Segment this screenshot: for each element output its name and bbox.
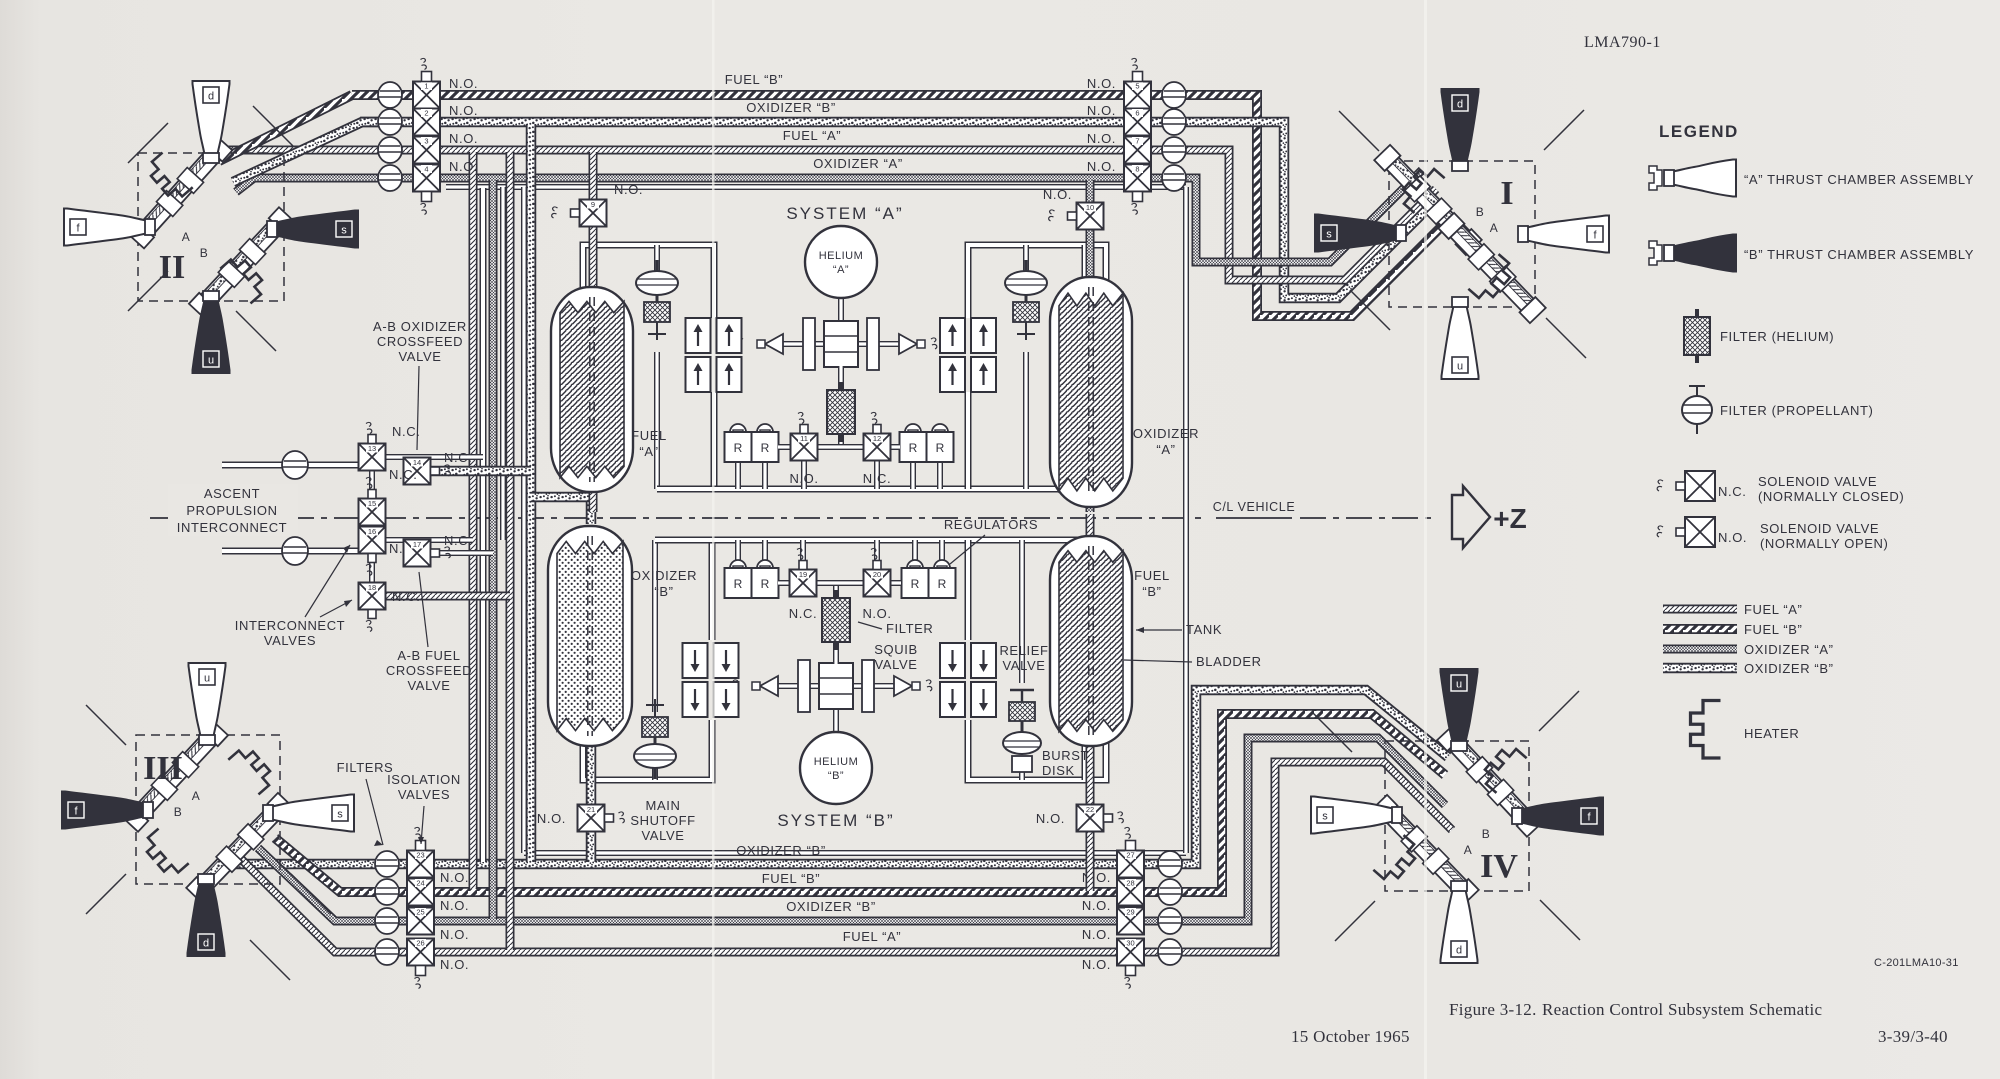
svg-text:N.O.: N.O. [1043, 187, 1072, 202]
svg-text:C-201LMA10-31: C-201LMA10-31 [1874, 957, 1959, 969]
svg-text:N.C.: N.C. [392, 589, 420, 604]
svg-text:N.C.: N.C. [1718, 484, 1746, 499]
svg-text:3: 3 [424, 137, 428, 146]
svg-text:N.O.: N.O. [449, 103, 478, 118]
svg-text:N.O.: N.O. [862, 606, 891, 621]
svg-text:s: s [341, 225, 347, 237]
svg-text:N.C.: N.C. [444, 450, 472, 465]
svg-text:d: d [203, 938, 209, 950]
svg-text:R: R [734, 577, 743, 591]
svg-text:IV: IV [1480, 848, 1518, 885]
svg-text:29: 29 [1126, 908, 1134, 917]
svg-text:VALVE: VALVE [642, 828, 685, 843]
svg-text:N.O.: N.O. [1036, 811, 1065, 826]
svg-text:“A”: “A” [639, 444, 658, 459]
svg-text:27: 27 [1126, 851, 1134, 860]
svg-text:FUEL: FUEL [1134, 568, 1170, 583]
svg-text:B: B [1482, 827, 1491, 841]
svg-text:A: A [182, 230, 191, 244]
svg-text:13: 13 [368, 444, 376, 453]
svg-text:LMA790-1: LMA790-1 [1584, 34, 1661, 51]
svg-text:OXIDIZER “A”: OXIDIZER “A” [1744, 642, 1834, 657]
svg-text:s: s [1326, 229, 1332, 241]
svg-text:VALVES: VALVES [398, 787, 450, 802]
svg-text:I: I [1500, 175, 1513, 212]
svg-text:II: II [159, 249, 185, 286]
svg-text:BLADDER: BLADDER [1196, 654, 1262, 669]
svg-text:28: 28 [1126, 879, 1134, 888]
svg-text:N.O.: N.O. [449, 131, 478, 146]
svg-text:1: 1 [424, 82, 428, 91]
svg-text:VALVES: VALVES [264, 633, 316, 648]
svg-text:20: 20 [873, 570, 881, 579]
svg-text:18: 18 [368, 583, 376, 592]
svg-text:SHUTOFF: SHUTOFF [630, 813, 695, 828]
svg-text:N.O.: N.O. [789, 471, 818, 486]
svg-text:B: B [200, 246, 209, 260]
svg-text:OXIDIZER “B”: OXIDIZER “B” [746, 100, 836, 115]
svg-text:“B”: “B” [828, 770, 844, 782]
svg-text:DISK: DISK [1042, 763, 1075, 778]
svg-text:4: 4 [424, 165, 428, 174]
svg-text:N.O.: N.O. [1082, 927, 1111, 942]
svg-text:B: B [1476, 205, 1485, 219]
svg-text:FUEL “B”: FUEL “B” [1744, 622, 1803, 637]
svg-text:VALVE: VALVE [1003, 658, 1046, 673]
svg-text:HELIUM: HELIUM [819, 250, 864, 262]
svg-text:A: A [1464, 843, 1473, 857]
svg-text:15: 15 [368, 499, 376, 508]
svg-text:OXIDIZER “B”: OXIDIZER “B” [786, 899, 876, 914]
svg-text:R: R [909, 441, 918, 455]
svg-text:N.O.: N.O. [614, 182, 643, 197]
svg-text:10: 10 [1086, 203, 1094, 212]
svg-text:LEGEND: LEGEND [1659, 122, 1739, 141]
svg-text:+Z: +Z [1493, 503, 1526, 534]
svg-text:N.O.: N.O. [449, 159, 478, 174]
svg-text:d: d [1456, 945, 1462, 957]
svg-text:FILTER: FILTER [886, 621, 933, 636]
svg-text:17: 17 [413, 540, 421, 549]
svg-text:14: 14 [413, 458, 421, 467]
svg-text:N.C.: N.C. [444, 533, 472, 548]
svg-text:u: u [208, 355, 214, 367]
svg-text:HELIUM: HELIUM [814, 756, 859, 768]
svg-text:5: 5 [1135, 82, 1139, 91]
svg-text:u: u [204, 673, 210, 685]
svg-text:B: B [174, 805, 183, 819]
svg-text:u: u [1457, 361, 1463, 373]
svg-text:“B”: “B” [654, 584, 673, 599]
svg-text:FUEL “B”: FUEL “B” [762, 871, 821, 886]
svg-text:SQUIB: SQUIB [874, 642, 917, 657]
svg-text:Reaction Control Subsystem Sch: Reaction Control Subsystem Schematic [1542, 1000, 1823, 1019]
svg-text:FUEL: FUEL [631, 428, 667, 443]
svg-text:(NORMALLY CLOSED): (NORMALLY CLOSED) [1758, 489, 1904, 504]
svg-text:REGULATORS: REGULATORS [944, 517, 1038, 532]
svg-text:R: R [761, 441, 770, 455]
svg-text:CROSSFEED: CROSSFEED [386, 663, 472, 678]
svg-text:N.O.: N.O. [1087, 103, 1116, 118]
svg-text:16: 16 [368, 527, 376, 536]
svg-text:N.O.: N.O. [1082, 898, 1111, 913]
svg-text:19: 19 [799, 570, 807, 579]
svg-text:N.O.: N.O. [1718, 530, 1747, 545]
svg-text:“B”: “B” [1142, 584, 1161, 599]
svg-text:CROSSFEED: CROSSFEED [377, 334, 463, 349]
svg-text:“A”: “A” [1156, 442, 1175, 457]
svg-text:ASCENT: ASCENT [204, 486, 260, 501]
svg-text:25: 25 [416, 908, 424, 917]
svg-text:26: 26 [416, 939, 424, 948]
svg-text:A: A [1490, 221, 1499, 235]
svg-text:INTERCONNECT: INTERCONNECT [235, 618, 345, 633]
svg-text:8: 8 [1135, 165, 1139, 174]
svg-text:VALVE: VALVE [875, 657, 918, 672]
svg-text:24: 24 [416, 879, 424, 888]
svg-text:N.O.: N.O. [440, 870, 469, 885]
svg-text:RELIEF: RELIEF [999, 643, 1048, 658]
svg-text:7: 7 [1135, 137, 1139, 146]
svg-text:Figure 3-12.: Figure 3-12. [1449, 1000, 1537, 1019]
svg-text:12: 12 [873, 434, 881, 443]
svg-text:R: R [761, 577, 770, 591]
svg-text:VALVE: VALVE [399, 349, 442, 364]
svg-text:“A”: “A” [833, 264, 849, 276]
svg-text:15 October 1965: 15 October 1965 [1291, 1027, 1410, 1046]
svg-text:N.O.: N.O. [440, 957, 469, 972]
svg-text:N.O.: N.O. [1087, 159, 1116, 174]
svg-text:N.O.: N.O. [537, 811, 566, 826]
svg-text:FILTER (PROPELLANT): FILTER (PROPELLANT) [1720, 403, 1873, 418]
svg-text:VALVE: VALVE [408, 678, 451, 693]
svg-text:(NORMALLY OPEN): (NORMALLY OPEN) [1760, 536, 1888, 551]
svg-text:FILTER (HELIUM): FILTER (HELIUM) [1720, 329, 1834, 344]
svg-text:FILTERS: FILTERS [337, 760, 394, 775]
svg-text:6: 6 [1135, 109, 1139, 118]
svg-text:R: R [911, 577, 920, 591]
svg-text:A-B OXIDIZER: A-B OXIDIZER [373, 319, 467, 334]
svg-text:OXIDIZER: OXIDIZER [631, 568, 697, 583]
svg-text:A-B FUEL: A-B FUEL [397, 648, 460, 663]
svg-text:N.C.: N.C. [789, 606, 817, 621]
svg-text:u: u [1456, 679, 1462, 691]
svg-text:“B” THRUST CHAMBER ASSEMBLY: “B” THRUST CHAMBER ASSEMBLY [1744, 247, 1974, 262]
svg-text:30: 30 [1126, 939, 1134, 948]
svg-text:21: 21 [587, 805, 595, 814]
svg-text:N.O.: N.O. [440, 898, 469, 913]
svg-text:FUEL “A”: FUEL “A” [783, 128, 842, 143]
svg-text:ISOLATION: ISOLATION [387, 772, 461, 787]
svg-text:3-39/3-40: 3-39/3-40 [1878, 1027, 1948, 1046]
svg-text:22: 22 [1086, 805, 1094, 814]
svg-text:OXIDIZER “B”: OXIDIZER “B” [736, 843, 826, 858]
svg-text:d: d [208, 91, 214, 103]
svg-text:OXIDIZER “B”: OXIDIZER “B” [1744, 661, 1834, 676]
svg-text:SOLENOID VALVE: SOLENOID VALVE [1760, 521, 1879, 536]
svg-text:9: 9 [591, 200, 595, 209]
svg-text:OXIDIZER “A”: OXIDIZER “A” [813, 156, 903, 171]
svg-text:FUEL “A”: FUEL “A” [843, 929, 902, 944]
svg-text:11: 11 [800, 434, 808, 443]
svg-text:N.C.: N.C. [863, 471, 891, 486]
svg-text:N.O.: N.O. [449, 76, 478, 91]
svg-text:d: d [1457, 99, 1463, 111]
svg-text:N.C.: N.C. [392, 424, 420, 439]
svg-text:III: III [143, 750, 183, 787]
svg-text:N.O.: N.O. [1082, 957, 1111, 972]
svg-text:R: R [938, 577, 947, 591]
svg-text:R: R [734, 441, 743, 455]
svg-text:“A” THRUST CHAMBER ASSEMBLY: “A” THRUST CHAMBER ASSEMBLY [1744, 172, 1974, 187]
svg-text:C/L VEHICLE: C/L VEHICLE [1213, 500, 1296, 514]
svg-text:N.O.: N.O. [1087, 76, 1116, 91]
svg-text:SYSTEM “B”: SYSTEM “B” [777, 811, 894, 830]
svg-text:2: 2 [424, 109, 428, 118]
svg-text:MAIN: MAIN [646, 798, 681, 813]
svg-text:N.C.: N.C. [389, 467, 417, 482]
svg-text:s: s [1322, 811, 1328, 823]
svg-text:FUEL “A”: FUEL “A” [1744, 602, 1803, 617]
svg-text:PROPULSION: PROPULSION [186, 503, 277, 518]
svg-text:A: A [192, 789, 201, 803]
svg-text:R: R [936, 441, 945, 455]
svg-text:SOLENOID VALVE: SOLENOID VALVE [1758, 474, 1877, 489]
svg-text:SYSTEM “A”: SYSTEM “A” [786, 204, 903, 223]
svg-text:TANK: TANK [1186, 622, 1222, 637]
svg-text:N.O.: N.O. [440, 927, 469, 942]
svg-text:23: 23 [416, 851, 424, 860]
svg-text:N.O.: N.O. [1087, 131, 1116, 146]
svg-text:INTERCONNECT: INTERCONNECT [177, 520, 287, 535]
svg-text:FUEL “B”: FUEL “B” [725, 72, 784, 87]
svg-text:BURST: BURST [1042, 748, 1089, 763]
svg-text:OXIDIZER: OXIDIZER [1133, 426, 1199, 441]
svg-text:HEATER: HEATER [1744, 726, 1799, 741]
svg-text:s: s [337, 809, 343, 821]
